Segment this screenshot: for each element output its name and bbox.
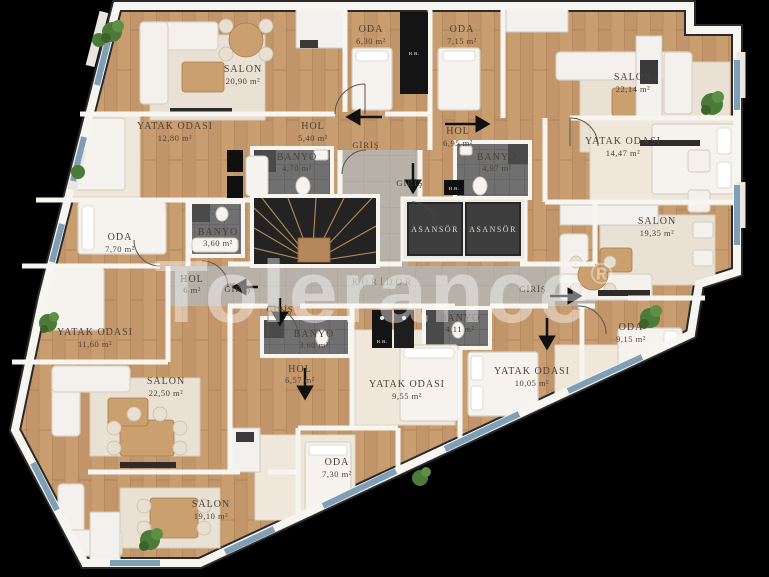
elevator-left-label: ASANSÖR xyxy=(411,225,459,234)
watermark: Tolerance® xyxy=(154,242,615,341)
label-topleft-giris: GİRİŞ xyxy=(352,140,379,150)
floorplan-canvas: ASANSÖR ASANSÖR H.B. H.B. H.B. xyxy=(0,0,769,577)
shaft-label-1: H.B. xyxy=(409,51,420,56)
shaft-label-2: H.B. xyxy=(449,186,460,191)
floorplan-svg: ASANSÖR ASANSÖR H.B. H.B. H.B. xyxy=(0,0,769,577)
elevator-right-label: ASANSÖR xyxy=(469,225,517,234)
label-topright-giris: GİRİŞ xyxy=(396,178,423,188)
label-topright-banyo: BANYO4,97 m² xyxy=(477,152,518,173)
label-bottom-hol: HOL6,57 m² xyxy=(285,364,315,385)
label-topleft-banyo: BANYO4,70 m² xyxy=(277,152,318,173)
